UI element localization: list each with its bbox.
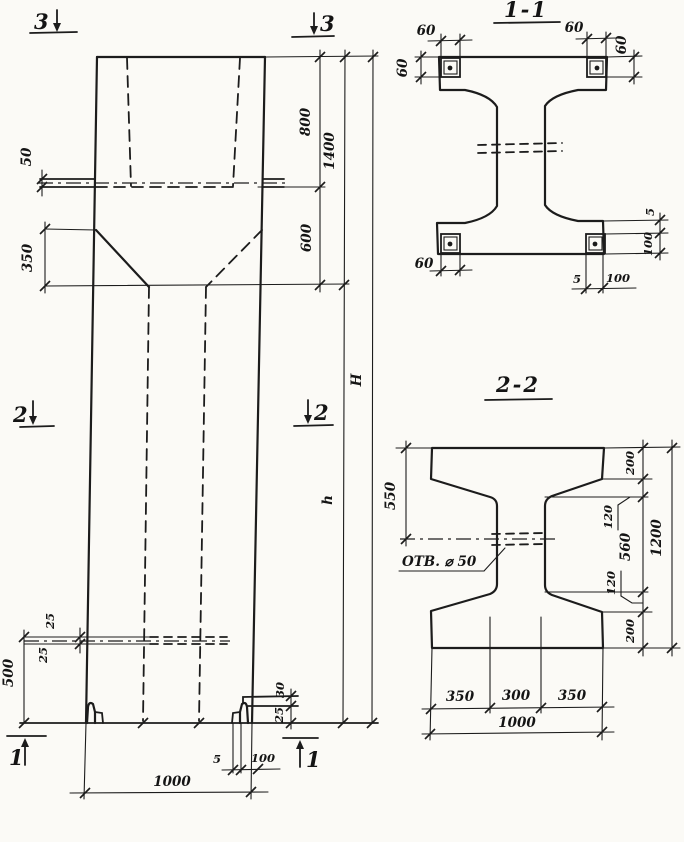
section-mark-3-right: 3 [292, 11, 335, 37]
section-1-1-outline [437, 57, 607, 254]
dim-slot-bottom: 25 [36, 647, 50, 664]
dim-haunch-bottom: 120 [604, 571, 618, 595]
section-mark-2-right: 2 [294, 400, 333, 426]
plate-bottom-left [441, 234, 460, 253]
section-2-2-dimensions: 550 200 120 560 120 200 1200 [383, 440, 680, 740]
hole-note: ОТВ. ⌀ 50 [399, 548, 505, 571]
section-2-2-outline [400, 448, 648, 648]
plate-bottom-right [586, 234, 605, 253]
dim-top-segment: 800 [298, 107, 314, 136]
dim-flange-bottom: 200 [623, 619, 637, 644]
dim-column-width: 1000 [153, 774, 191, 790]
dim-shaft-height: h [320, 495, 336, 505]
dim-flange-to-hole: 550 [383, 481, 399, 510]
dim-foot-height: 25 [272, 707, 286, 724]
section-1-1-title: 1-1 [494, 0, 560, 23]
section-mark-label: 1 [306, 747, 321, 772]
dim-shoe-thickness: 5 [213, 752, 221, 766]
section-title: 1-1 [504, 0, 548, 22]
dim-neck-segment: 600 [299, 223, 315, 252]
dim-slot-top: 25 [43, 613, 57, 630]
dim-flange-left: 350 [446, 689, 475, 705]
dim-upper-segment: 1400 [322, 132, 338, 170]
dim-foot-step: 30 [273, 682, 287, 698]
section-2-2-title: 2-2 [485, 372, 552, 400]
section-mark-1-left: 1 [7, 736, 46, 770]
column-drawing: 3 3 2 2 1 [0, 0, 684, 842]
elevation-view: 3 3 2 2 1 [1, 9, 378, 799]
column-outline [40, 57, 298, 723]
dim-section-height: 1200 [649, 519, 665, 557]
dim-section-width: 1000 [498, 715, 536, 731]
dim-plate-tr-width: 60 [565, 20, 584, 36]
section-2-2-view: 2-2 ОТВ. ⌀ 50 550 [383, 372, 680, 740]
dim-shoe-side-gap: 5 [643, 208, 657, 216]
section-1-1-view: 1-1 [395, 0, 668, 294]
section-title: 2-2 [495, 372, 540, 397]
dim-ledge: 50 [19, 147, 35, 166]
section-mark-label: 2 [12, 402, 28, 427]
section-mark-3-left: 3 [30, 9, 77, 34]
plate-top-right [587, 58, 606, 77]
hole-label: ОТВ. ⌀ 50 [402, 554, 477, 570]
dim-flange-top: 200 [623, 451, 637, 476]
dim-shoe-gap: 5 [573, 272, 581, 286]
section-mark-label: 3 [320, 11, 335, 36]
section-mark-label: 2 [313, 400, 329, 425]
dim-overall-height: H [349, 372, 365, 387]
dim-haunch-top: 120 [601, 505, 615, 529]
dim-base-segment: 500 [1, 658, 17, 687]
dim-taper: 350 [20, 243, 36, 272]
dim-plate-tl-height: 60 [395, 58, 411, 77]
section-mark-2-left: 2 [12, 401, 54, 427]
dim-web-height: 560 [618, 532, 634, 561]
section-mark-1-right: 1 [283, 738, 321, 772]
dim-shoe-width: 100 [606, 271, 630, 285]
section-mark-label: 1 [9, 745, 24, 770]
dim-web-width: 300 [502, 688, 531, 704]
hidden-edges [24, 58, 286, 721]
drawing-sheet: 3 3 2 2 1 [0, 0, 684, 842]
dim-plate-tl-width: 60 [417, 23, 436, 39]
dim-plate-bl-width: 60 [415, 256, 434, 272]
dim-shoe-width: 100 [251, 751, 275, 765]
plate-top-left [441, 58, 460, 77]
section-mark-label: 3 [34, 9, 49, 34]
dim-flange-right: 350 [558, 688, 587, 704]
dim-shoe-side-width: 100 [641, 232, 655, 256]
dim-plate-tr-height: 60 [614, 35, 630, 54]
